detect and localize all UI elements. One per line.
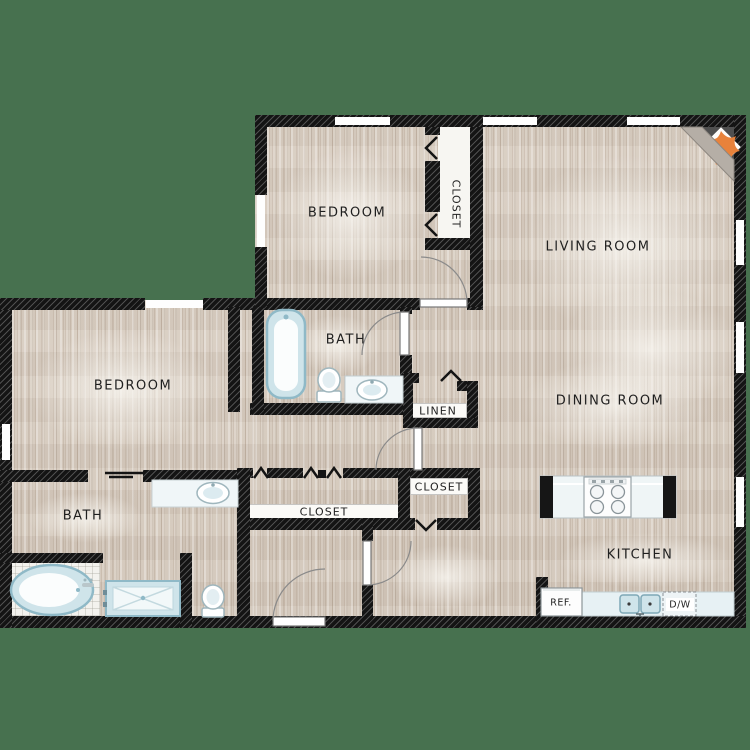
appliance-label-refrigerator: REF. [550,598,572,609]
shower-icon [103,581,180,616]
room-label-bath-left: BATH [63,509,104,524]
room-label-bath-middle: BATH [326,333,367,348]
floor-plan: BEDROOM CLOSET LIVING ROOM BATH LINEN BE… [0,0,750,750]
appliance-label-dishwasher: D/W [669,600,690,611]
room-label-living-room: LIVING ROOM [546,240,651,255]
garden-tub-icon [11,565,94,615]
door-swing [273,257,467,626]
room-label-bedroom-left: BEDROOM [94,379,172,394]
sink-icon [345,376,403,403]
room-label-closet-hall: CLOSET [300,506,349,519]
fixtures-overlay [0,0,750,750]
room-label-closet-top: CLOSET [450,180,463,229]
bathtub-icon [267,310,305,398]
bifold-door-marker [318,470,326,478]
room-label-closet-small: CLOSET [415,481,464,494]
toilet-icon [202,585,224,617]
room-label-linen: LINEN [419,405,457,418]
fireplace-icon [681,127,741,181]
stove-icon [584,477,631,517]
room-label-kitchen: KITCHEN [607,548,674,563]
room-label-bedroom-top: BEDROOM [308,206,386,221]
vanity-sink-icon [152,480,238,507]
room-label-dining-room: DINING ROOM [556,394,665,409]
toilet-icon [317,368,341,402]
